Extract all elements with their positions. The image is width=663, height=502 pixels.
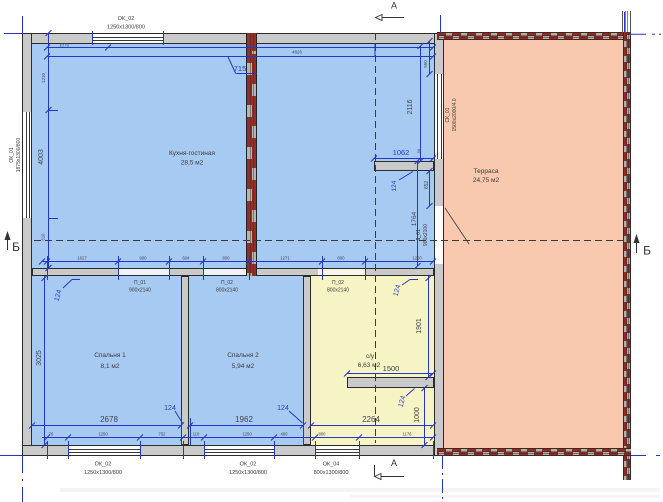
svg-text:ОК_01: ОК_01 bbox=[9, 147, 15, 162]
svg-text:110: 110 bbox=[193, 432, 200, 437]
svg-text:24,75 м2: 24,75 м2 bbox=[473, 177, 500, 184]
svg-text:124: 124 bbox=[54, 289, 64, 302]
svg-text:1764: 1764 bbox=[411, 211, 418, 226]
svg-text:1500х2000/4.0: 1500х2000/4.0 bbox=[452, 98, 458, 131]
svg-text:Терраса: Терраса bbox=[474, 168, 499, 175]
svg-text:ОК_02: ОК_02 bbox=[118, 16, 135, 22]
svg-text:652: 652 bbox=[424, 181, 430, 190]
svg-text:1500: 1500 bbox=[383, 364, 400, 373]
svg-text:Спальня 2: Спальня 2 bbox=[227, 352, 259, 359]
svg-text:800: 800 bbox=[337, 256, 345, 261]
svg-text:А: А bbox=[391, 458, 397, 468]
svg-text:124: 124 bbox=[164, 405, 176, 412]
svg-text:1250: 1250 bbox=[98, 432, 108, 437]
svg-text:1210: 1210 bbox=[41, 72, 46, 83]
svg-text:1250х1300/800: 1250х1300/800 bbox=[84, 470, 122, 476]
svg-text:1627: 1627 bbox=[77, 256, 87, 261]
svg-text:Кухня-гостиная: Кухня-гостиная bbox=[169, 150, 215, 157]
svg-text:1271: 1271 bbox=[280, 256, 290, 261]
svg-text:1250: 1250 bbox=[242, 432, 252, 437]
svg-text:СК_01: СК_01 bbox=[445, 107, 451, 122]
svg-text:800: 800 bbox=[319, 432, 327, 437]
svg-text:Спальня 1: Спальня 1 bbox=[94, 352, 126, 359]
svg-text:76: 76 bbox=[49, 432, 54, 437]
svg-text:124: 124 bbox=[391, 180, 398, 191]
svg-text:6,63 м2: 6,63 м2 bbox=[358, 362, 381, 369]
svg-text:1250х1300/800: 1250х1300/800 bbox=[229, 470, 267, 476]
svg-text:1076: 1076 bbox=[59, 43, 70, 48]
svg-text:Б: Б bbox=[12, 240, 20, 254]
svg-text:2678: 2678 bbox=[100, 415, 118, 424]
svg-text:124: 124 bbox=[277, 405, 289, 412]
svg-text:А: А bbox=[391, 1, 397, 11]
svg-text:1176: 1176 bbox=[402, 432, 412, 437]
svg-text:900: 900 bbox=[139, 256, 147, 261]
svg-text:124: 124 bbox=[393, 284, 403, 297]
svg-text:Д_01: Д_01 bbox=[416, 229, 422, 241]
svg-text:800х1300/800: 800х1300/800 bbox=[314, 470, 349, 476]
svg-text:2264: 2264 bbox=[362, 415, 380, 424]
svg-text:1962: 1962 bbox=[235, 415, 253, 424]
svg-text:900х2140: 900х2140 bbox=[129, 288, 151, 294]
svg-text:1250х1300/800: 1250х1300/800 bbox=[107, 25, 145, 31]
svg-text:2116: 2116 bbox=[407, 99, 414, 114]
svg-text:4003: 4003 bbox=[38, 149, 45, 165]
svg-text:1875х1300/800: 1875х1300/800 bbox=[16, 138, 22, 173]
svg-text:ОК_02: ОК_02 bbox=[95, 462, 112, 468]
svg-text:1901: 1901 bbox=[416, 318, 423, 334]
svg-text:604: 604 bbox=[182, 256, 190, 261]
svg-text:4826: 4826 bbox=[292, 50, 303, 55]
svg-text:П_02: П_02 bbox=[221, 280, 233, 286]
svg-text:800х2140: 800х2140 bbox=[327, 288, 349, 294]
svg-text:715: 715 bbox=[234, 64, 247, 73]
svg-text:400: 400 bbox=[281, 432, 289, 437]
svg-text:900х2100: 900х2100 bbox=[423, 224, 429, 246]
svg-text:3025: 3025 bbox=[36, 350, 43, 366]
svg-text:28,5 м2: 28,5 м2 bbox=[181, 160, 204, 167]
svg-text:1250: 1250 bbox=[412, 256, 422, 261]
svg-text:610: 610 bbox=[41, 233, 46, 241]
svg-text:550: 550 bbox=[423, 60, 428, 68]
svg-text:П_02: П_02 bbox=[332, 280, 344, 286]
svg-text:66: 66 bbox=[416, 148, 421, 153]
svg-text:П_01: П_01 bbox=[134, 280, 146, 286]
svg-text:8,1 м2: 8,1 м2 bbox=[101, 363, 120, 370]
svg-text:5,94 м2: 5,94 м2 bbox=[232, 363, 255, 370]
svg-text:ОК_02: ОК_02 bbox=[240, 462, 257, 468]
svg-text:800: 800 bbox=[222, 256, 230, 261]
svg-text:800х2140: 800х2140 bbox=[216, 288, 238, 294]
svg-text:ОК_04: ОК_04 bbox=[323, 462, 340, 468]
svg-text:124: 124 bbox=[398, 395, 408, 408]
svg-text:752: 752 bbox=[159, 432, 167, 437]
svg-text:Б: Б bbox=[643, 244, 651, 258]
svg-text:1000: 1000 bbox=[414, 407, 421, 423]
svg-text:1062: 1062 bbox=[393, 148, 410, 157]
svg-text:с/у: с/у bbox=[366, 353, 375, 360]
